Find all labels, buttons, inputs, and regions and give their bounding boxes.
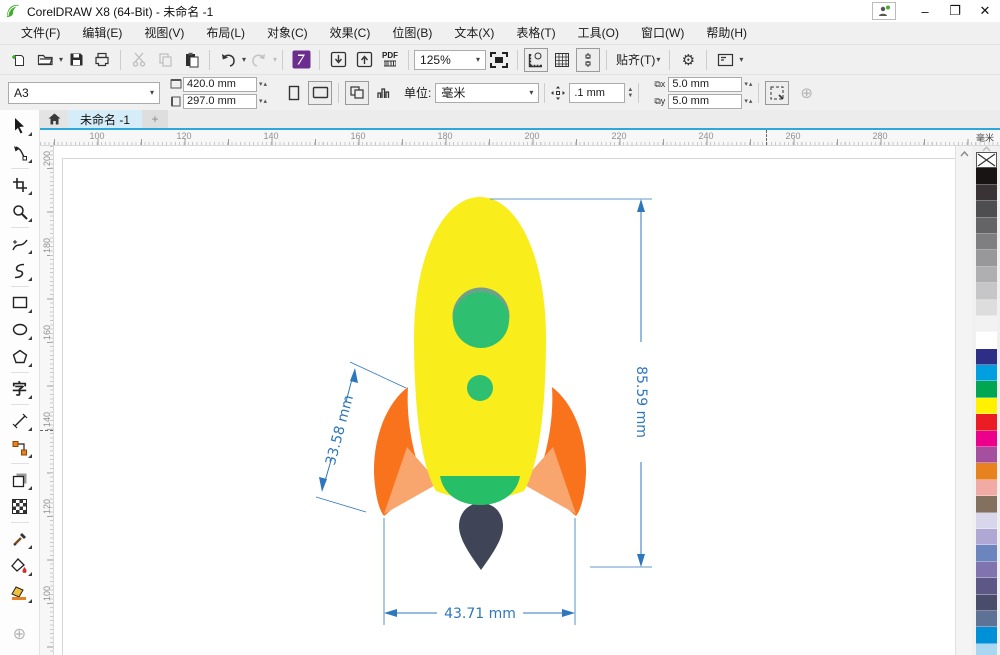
ruler-tick: 200 (42, 152, 52, 166)
interactive-fill-tool[interactable] (6, 552, 34, 579)
color-swatch[interactable] (976, 250, 997, 266)
rocket-body[interactable] (414, 197, 546, 500)
menu-window[interactable]: 窗口(W) (630, 22, 695, 44)
zoom-level-value: 125% (420, 53, 451, 67)
color-swatch[interactable] (976, 480, 997, 496)
text-tool-icon: 字 (12, 378, 27, 399)
treat-as-filled-icon (769, 85, 785, 101)
all-pages-button[interactable] (345, 81, 369, 105)
color-swatch[interactable] (976, 300, 997, 316)
export-button[interactable] (352, 48, 376, 72)
coreldraw-window: CorelDRAW X8 (64-Bit) - 未命名 -1 – ❐ ✕ 文件(… (0, 0, 1000, 655)
duplicate-y-spinner[interactable]: ▾▴ (744, 97, 753, 105)
page-preset-combo[interactable]: A3 ▾ (8, 82, 160, 104)
application-panel-icon (717, 53, 734, 67)
publish-pdf-button[interactable]: PDF (378, 48, 402, 72)
print-button[interactable] (90, 48, 114, 72)
redo-button (247, 48, 271, 72)
transparency-tool-icon (12, 499, 27, 514)
color-swatch[interactable] (976, 168, 997, 184)
color-eyedropper-tool[interactable] (6, 525, 34, 552)
ruler-tick: 240 (698, 131, 713, 141)
units-label: 单位: (404, 84, 431, 101)
freehand-tool[interactable] (6, 230, 34, 257)
color-swatch[interactable] (976, 529, 997, 545)
polygon-tool[interactable] (6, 343, 34, 370)
show-rulers-button[interactable] (524, 48, 548, 72)
undo-icon (220, 53, 236, 67)
grid-icon (554, 52, 570, 68)
rocket-cap[interactable] (440, 476, 520, 505)
maximize-button[interactable]: ❐ (940, 0, 970, 22)
drawing-canvas[interactable]: 85.59 mm 33.58 mm (54, 146, 955, 655)
import-icon (330, 51, 347, 68)
color-swatch[interactable] (976, 316, 997, 332)
color-swatch[interactable] (976, 398, 997, 414)
page-size-group: 420.0 mm ▾▴ 297.0 mm ▾▴ (170, 77, 268, 109)
rocket-drawing[interactable]: 85.59 mm 33.58 mm (54, 146, 955, 655)
cut-icon (132, 52, 146, 67)
customize-plus-button[interactable]: ⊕ (800, 84, 813, 102)
nudge-spinner[interactable]: ▲▼ (627, 87, 633, 99)
ellipse-tool[interactable] (6, 316, 34, 343)
app-launcher-button[interactable] (289, 48, 313, 72)
units-dropdown-icon: ▾ (523, 88, 533, 97)
menu-bitmaps[interactable]: 位图(B) (381, 22, 443, 44)
cut-button (127, 48, 151, 72)
document-tab-bar: 未命名 -1 + (40, 110, 1000, 130)
menu-bar: 文件(F) 编辑(E) 视图(V) 布局(L) 对象(C) 效果(C) 位图(B… (0, 22, 1000, 44)
redo-icon (251, 53, 267, 67)
current-page-button[interactable] (371, 81, 395, 105)
ruler-tick: 100 (42, 587, 52, 601)
open-dropdown[interactable]: ▾ (59, 55, 63, 64)
duplicate-y-field[interactable]: 5.0 mm (668, 94, 742, 109)
shape-tool-icon (12, 145, 28, 161)
ruler-tick: 160 (42, 326, 52, 340)
color-swatch[interactable] (976, 611, 997, 627)
color-swatch[interactable] (976, 431, 997, 447)
color-swatch[interactable] (976, 234, 997, 250)
smart-fill-tool-icon (11, 585, 28, 601)
open-folder-icon (37, 52, 54, 67)
redo-dropdown: ▾ (273, 55, 277, 64)
zoom-tool-icon (12, 204, 28, 220)
application-panel-button[interactable] (713, 48, 737, 72)
ruler-tick: 140 (263, 131, 278, 141)
home-tab[interactable] (40, 110, 68, 128)
page-height-icon (170, 96, 183, 107)
pdf-barcode-icon (384, 60, 396, 67)
page-height-field[interactable]: 297.0 mm (183, 94, 257, 109)
polygon-tool-icon (12, 349, 28, 364)
ellipse-tool-icon (12, 322, 28, 337)
ruler-tick: 180 (437, 131, 452, 141)
ruler-tick: 100 (89, 131, 104, 141)
duplicate-x-field[interactable]: 5.0 mm (668, 77, 742, 92)
options-button[interactable]: ⚙ (676, 48, 700, 72)
connector-tool-icon (12, 440, 28, 456)
transparency-tool[interactable] (6, 493, 34, 520)
all-pages-icon (349, 85, 365, 100)
treat-as-filled-button[interactable] (765, 81, 789, 105)
full-screen-preview-button[interactable] (487, 48, 511, 72)
color-swatch[interactable] (976, 447, 997, 463)
copy-icon (158, 52, 173, 67)
units-value: 毫米 (441, 84, 465, 101)
ruler-tick: 180 (42, 239, 52, 253)
color-swatch[interactable] (976, 627, 997, 643)
color-swatch[interactable] (976, 267, 997, 283)
color-swatch[interactable] (976, 283, 997, 299)
pick-tool[interactable] (6, 112, 34, 139)
current-page-icon (376, 85, 391, 100)
color-swatch[interactable] (976, 332, 997, 348)
menu-view[interactable]: 视图(V) (133, 22, 195, 44)
ruler-tick: 120 (176, 131, 191, 141)
crop-tool[interactable] (6, 171, 34, 198)
ruler-tick: 160 (350, 131, 365, 141)
units-combo[interactable]: 毫米 ▾ (435, 83, 539, 103)
ruler-tick: 200 (524, 131, 539, 141)
color-swatch[interactable] (976, 513, 997, 529)
sign-in-icon[interactable] (872, 2, 896, 20)
menu-edit[interactable]: 编辑(E) (71, 22, 133, 44)
drop-shadow-tool[interactable] (6, 466, 34, 493)
rocket-window-small[interactable] (467, 375, 493, 401)
copy-button (153, 48, 177, 72)
ruler-tick: 220 (611, 131, 626, 141)
scroll-up-icon[interactable] (957, 146, 972, 161)
interactive-fill-tool-icon (11, 558, 28, 574)
color-swatch[interactable] (976, 578, 997, 594)
close-button[interactable]: ✕ (970, 0, 1000, 22)
color-swatch[interactable] (976, 218, 997, 234)
standard-toolbar: ▾ ▾ ▾ (0, 44, 1000, 74)
ruler-tick: 140 (42, 413, 52, 427)
no-color-swatch[interactable] (976, 152, 997, 168)
text-tool[interactable]: 字 (6, 375, 34, 402)
menu-file[interactable]: 文件(F) (10, 22, 71, 44)
dimension-fin-label: 33.58 mm (323, 394, 357, 468)
window-title: CorelDRAW X8 (64-Bit) - 未命名 -1 (27, 3, 213, 20)
ruler-tick: 120 (42, 500, 52, 514)
pick-tool-icon (12, 117, 27, 134)
menu-tools[interactable]: 工具(O) (567, 22, 630, 44)
ruler-page-marker (40, 430, 53, 431)
color-swatch[interactable] (976, 562, 997, 578)
save-button[interactable] (64, 48, 88, 72)
property-bar: A3 ▾ 420.0 mm ▾▴ 297.0 mm ▾▴ (0, 74, 1000, 110)
show-grid-button[interactable] (550, 48, 574, 72)
undo-dropdown[interactable]: ▾ (242, 55, 246, 64)
zoom-dropdown-icon: ▾ (470, 55, 480, 64)
rectangle-tool-icon (12, 295, 28, 310)
color-swatch[interactable] (976, 463, 997, 479)
menu-effects[interactable]: 效果(C) (319, 22, 382, 44)
tab-document[interactable]: 未命名 -1 (68, 110, 142, 128)
rulers-icon (528, 52, 544, 68)
duplicate-y-icon: ⧉y (654, 96, 668, 107)
coreldraw-logo-icon (5, 3, 21, 19)
duplicate-distance-group: ⧉x 5.0 mm ▾▴ ⧉y 5.0 mm ▾▴ (654, 77, 753, 109)
add-tools-button[interactable]: ⊕ (6, 620, 34, 647)
b-spline-tool-icon (12, 263, 27, 279)
title-bar: CorelDRAW X8 (64-Bit) - 未命名 -1 – ❐ ✕ (0, 0, 1000, 22)
ruler-unit-label: 毫米 (976, 131, 994, 144)
full-screen-icon (490, 52, 508, 68)
color-swatch[interactable] (976, 496, 997, 512)
drop-shadow-tool-icon (12, 472, 28, 488)
zoom-level-combo[interactable]: 125% ▾ (414, 50, 486, 70)
color-swatch[interactable] (976, 201, 997, 217)
open-button[interactable] (33, 48, 57, 72)
snap-to-label: 贴齐(T) (616, 51, 655, 68)
menu-object[interactable]: 对象(C) (256, 22, 319, 44)
page-width-icon (170, 79, 183, 90)
portrait-icon (288, 85, 300, 101)
import-button[interactable] (326, 48, 350, 72)
page-width-spinner[interactable]: ▾▴ (259, 80, 268, 88)
horizontal-ruler[interactable]: 100 120 140 160 180 200 220 240 260 280 … (40, 130, 1000, 146)
parallel-dimension-tool[interactable] (6, 407, 34, 434)
application-panel-dropdown[interactable]: ▾ (739, 55, 743, 64)
home-icon (48, 113, 61, 125)
save-icon (69, 52, 84, 67)
dimension-height-label: 85.59 mm (633, 366, 649, 438)
duplicate-x-spinner[interactable]: ▾▴ (744, 80, 753, 88)
color-swatch[interactable] (976, 595, 997, 611)
vertical-ruler[interactable]: 200 180 160 140 120 100 (40, 146, 54, 655)
new-document-icon (11, 52, 27, 68)
rocket-flame[interactable] (459, 503, 503, 570)
page-height-spinner[interactable]: ▾▴ (259, 97, 268, 105)
page-width-field[interactable]: 420.0 mm (183, 77, 257, 92)
parallel-dimension-tool-icon (12, 413, 28, 429)
minimize-button[interactable]: – (910, 0, 940, 22)
landscape-button[interactable] (308, 81, 332, 105)
vertical-scrollbar[interactable] (955, 146, 972, 655)
new-tab-button[interactable]: + (142, 110, 168, 128)
duplicate-x-icon: ⧉x (654, 79, 668, 90)
paste-button[interactable] (179, 48, 203, 72)
snap-to-button[interactable]: 贴齐(T) ▾ (612, 49, 664, 71)
color-swatch[interactable] (976, 365, 997, 381)
export-icon (356, 51, 373, 68)
color-swatch[interactable] (976, 644, 997, 655)
page-preset-dropdown-icon: ▾ (144, 88, 154, 97)
new-document-button[interactable] (7, 48, 31, 72)
guidelines-icon (580, 52, 596, 68)
dimension-width-label: 43.71 mm (444, 606, 516, 622)
snap-to-dropdown-icon: ▾ (656, 55, 660, 64)
color-palette (972, 146, 1000, 655)
color-swatch[interactable] (976, 185, 997, 201)
paste-icon (184, 52, 199, 68)
page-preset-value: A3 (14, 86, 29, 100)
nudge-offset-icon (550, 85, 566, 101)
eyedropper-tool-icon (12, 531, 28, 547)
show-guidelines-button[interactable] (576, 48, 600, 72)
rectangle-tool[interactable] (6, 289, 34, 316)
color-swatch[interactable] (976, 381, 997, 397)
ruler-page-marker (766, 130, 767, 145)
landscape-icon (312, 86, 329, 99)
rocket-window[interactable] (453, 292, 509, 348)
menu-table[interactable]: 表格(T) (505, 22, 566, 44)
undo-button[interactable] (216, 48, 240, 72)
connector-tool[interactable] (6, 434, 34, 461)
menu-text[interactable]: 文本(X) (443, 22, 505, 44)
zoom-tool[interactable] (6, 198, 34, 225)
color-swatch[interactable] (976, 545, 997, 561)
print-icon (94, 52, 110, 67)
crop-tool-icon (12, 177, 28, 193)
app-launcher-icon (292, 50, 311, 69)
menu-layout[interactable]: 布局(L) (195, 22, 256, 44)
color-swatch[interactable] (976, 349, 997, 365)
pdf-label: PDF (382, 52, 398, 60)
toolbox: 字 ⊕ (0, 110, 40, 655)
color-swatch[interactable] (976, 414, 997, 430)
smart-fill-tool[interactable] (6, 579, 34, 606)
freehand-tool-icon (11, 236, 28, 252)
ruler-tick: 280 (872, 131, 887, 141)
nudge-offset-field[interactable]: .1 mm (569, 83, 625, 103)
portrait-button[interactable] (282, 81, 306, 105)
ruler-tick: 260 (785, 131, 800, 141)
no-color-icon (977, 153, 996, 167)
shape-tool[interactable] (6, 139, 34, 166)
menu-help[interactable]: 帮助(H) (695, 22, 758, 44)
b-spline-tool[interactable] (6, 257, 34, 284)
